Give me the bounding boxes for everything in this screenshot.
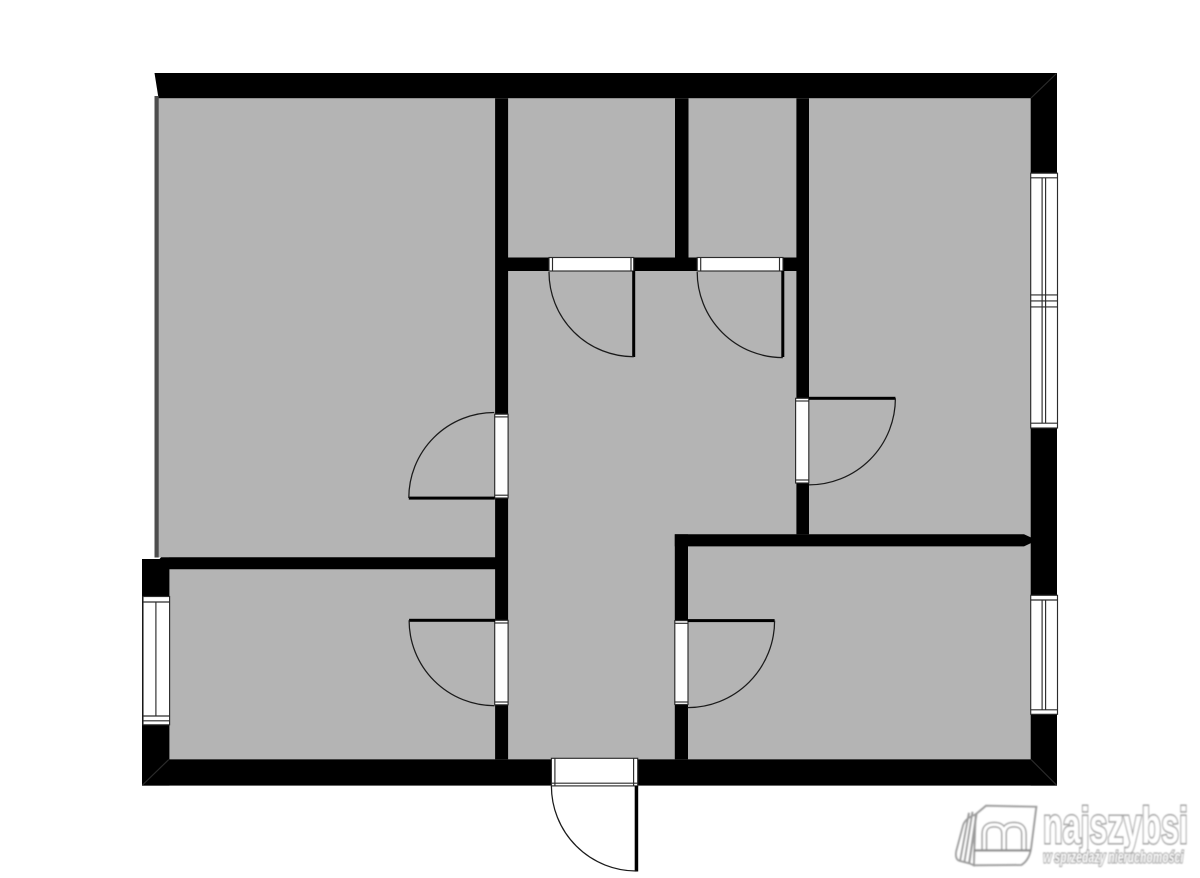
svg-text:najszybsi: najszybsi (1043, 797, 1188, 854)
svg-text:w sprzedaży nieruchomości: w sprzedaży nieruchomości (1043, 847, 1184, 866)
